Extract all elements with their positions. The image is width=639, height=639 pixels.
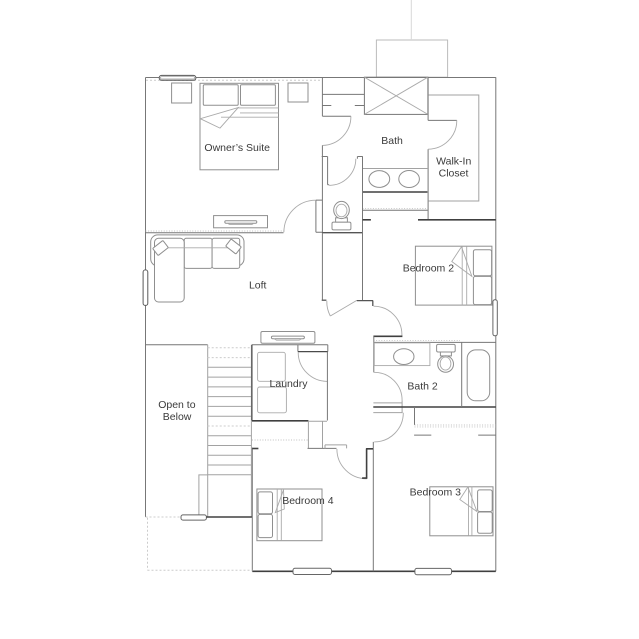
svg-text:Loft: Loft (249, 280, 267, 292)
svg-text:Bedroom 3: Bedroom 3 (410, 487, 462, 499)
svg-text:Bath 2: Bath 2 (407, 380, 438, 392)
svg-text:Bedroom 2: Bedroom 2 (403, 263, 455, 275)
svg-text:Closet: Closet (439, 167, 469, 179)
svg-text:Walk-In: Walk-In (436, 156, 471, 168)
svg-text:Open to: Open to (158, 399, 196, 411)
svg-text:Owner’s Suite: Owner’s Suite (204, 142, 270, 154)
svg-text:Laundry: Laundry (270, 378, 309, 390)
svg-text:Bedroom 4: Bedroom 4 (282, 495, 334, 507)
svg-text:Below: Below (163, 411, 192, 423)
svg-text:Bath: Bath (381, 135, 403, 147)
